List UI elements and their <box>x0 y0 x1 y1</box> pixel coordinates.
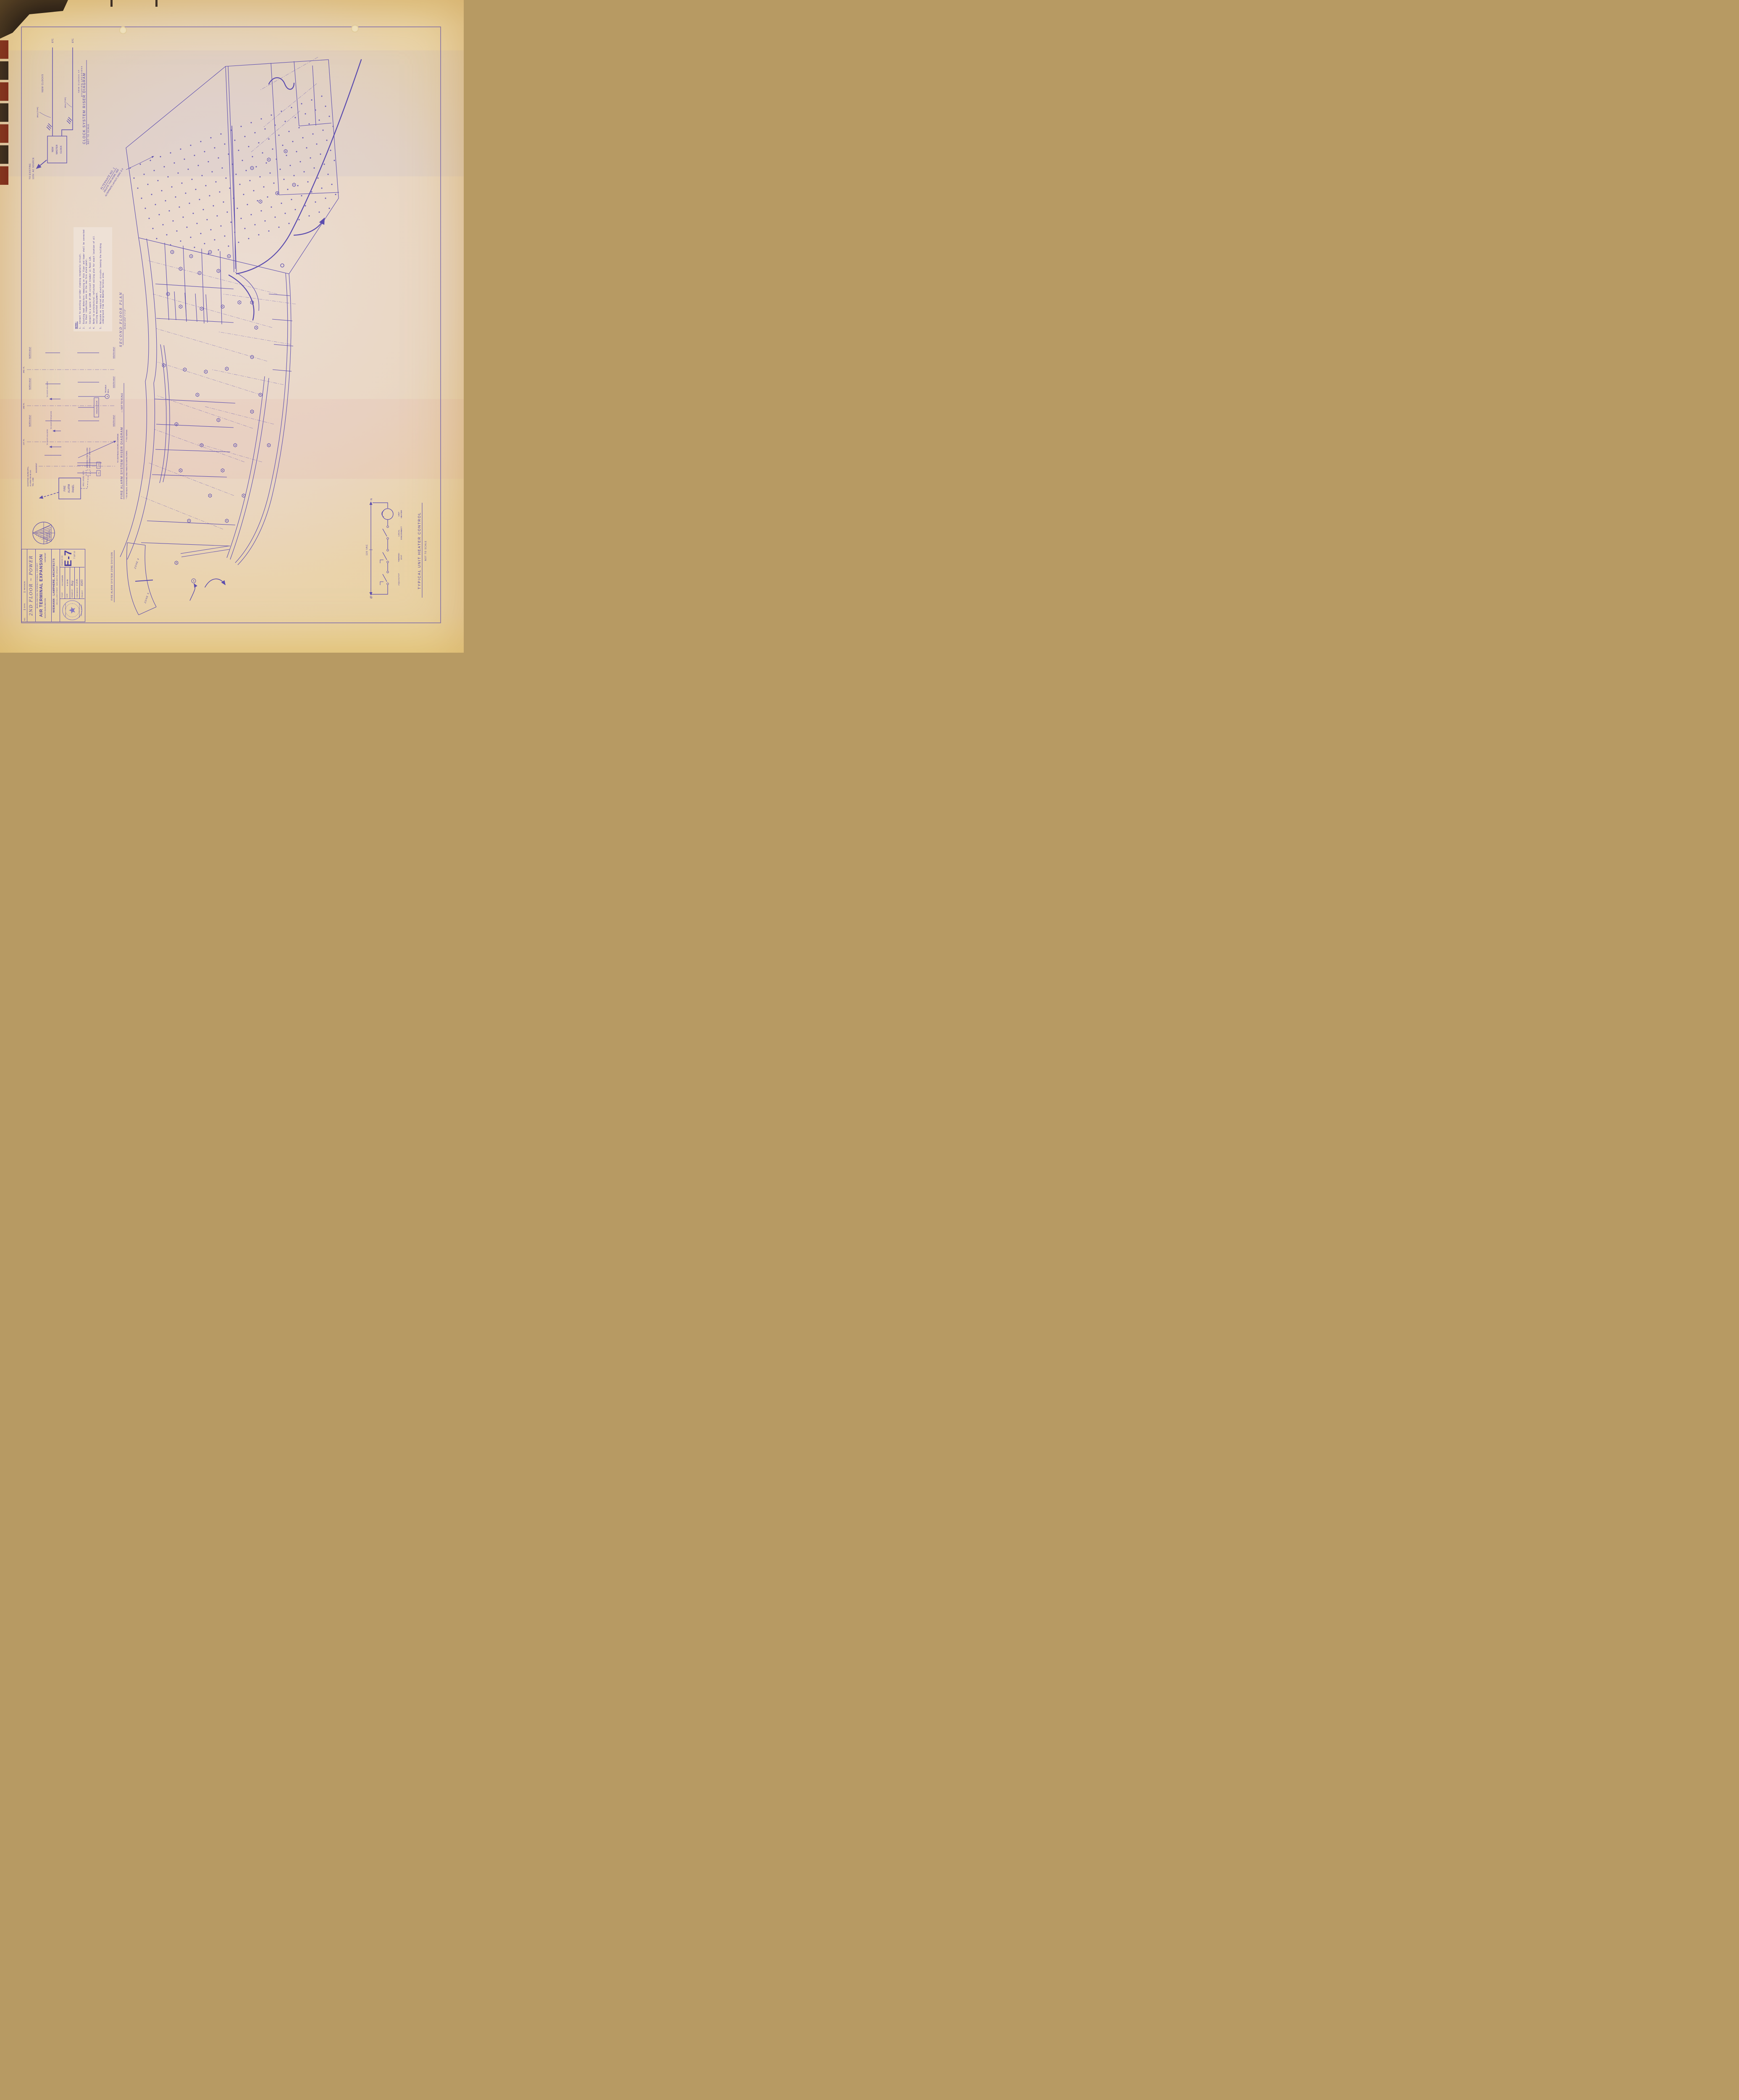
ceiling-dot <box>300 161 301 163</box>
sheet-title: 2ND FLOOR ~ POWER <box>27 549 36 622</box>
ceiling-dot <box>261 118 262 120</box>
ceiling-dot <box>310 157 311 159</box>
ceiling-dot <box>348 166 349 168</box>
svg-text:3#14 (TYP.): 3#14 (TYP.) <box>37 107 39 118</box>
svg-text:NORTH HALF: NORTH HALF <box>29 415 31 427</box>
receptacle-symbols <box>162 150 295 564</box>
ceiling-dot <box>305 205 306 207</box>
receptacle-hex <box>171 250 173 254</box>
clock-riser-diagram: TO EXISTING 120V. AC SOURCE NEW MASTER C… <box>21 34 89 186</box>
ceiling-dot <box>130 168 131 169</box>
film-tab <box>155 0 158 7</box>
ceiling-dot <box>137 188 139 189</box>
ceiling-dot <box>295 209 296 210</box>
ceiling-dot <box>144 174 145 175</box>
ceiling-dot <box>156 238 158 239</box>
ceiling-dot <box>214 239 215 241</box>
ceiling-dot <box>268 231 270 232</box>
date-value: 8-16-85 <box>66 579 68 586</box>
ceiling-dot <box>185 193 187 194</box>
svg-text:TO DOOR HOLDERS: TO DOOR HOLDERS <box>46 381 48 397</box>
ceiling-dot <box>198 257 199 258</box>
ceiling-dot <box>355 186 357 188</box>
ceiling-dot <box>224 236 226 237</box>
ceiling-dot <box>164 166 165 168</box>
svg-text:2ND FL.: 2ND FL. <box>23 402 25 409</box>
ceiling-dot <box>229 188 231 189</box>
ceiling-dot <box>295 117 296 118</box>
ceiling-dot <box>252 156 253 157</box>
svg-text:NEW: NEW <box>52 147 54 152</box>
ceiling-dot <box>155 204 156 205</box>
ceiling-dot <box>223 202 224 203</box>
ceiling-dot <box>194 155 195 156</box>
ceiling-dot <box>305 113 306 115</box>
ceiling-dot <box>152 228 154 229</box>
ceiling-dot <box>184 159 185 160</box>
ceiling-dot <box>169 210 170 212</box>
note-item: 1.Connect to existing corridor cleaning … <box>79 230 81 329</box>
ceiling-dot <box>265 220 266 222</box>
ceiling-dot <box>306 147 307 149</box>
drawing-number-cell: DRAWING NO. E-7 7 OF 10 <box>60 549 84 567</box>
svg-text:TO DOOR HOLDERS: TO DOOR HOLDERS <box>46 429 48 445</box>
ceiling-dot <box>265 129 266 130</box>
ceiling-dot <box>334 160 335 161</box>
ceiling-dot <box>213 205 214 207</box>
ceiling-dot <box>290 165 291 166</box>
receptacle-hex <box>208 250 211 254</box>
ceiling-dot <box>345 190 347 192</box>
svg-text:MASTER: MASTER <box>56 144 58 154</box>
ceiling-dot <box>232 164 233 165</box>
ceiling-dot <box>187 227 188 228</box>
ceiling-dot-grid <box>130 96 360 270</box>
project-number: 8205 <box>81 580 84 586</box>
svg-text:DISCONNECT: DISCONNECT <box>400 526 403 540</box>
ceiling-dot <box>170 152 171 154</box>
svg-text:ETC.: ETC. <box>52 38 54 43</box>
ceiling-dot <box>242 160 243 161</box>
ceiling-dot <box>299 127 300 129</box>
receptacle-hex <box>217 269 220 273</box>
rev-date-header: DATE <box>24 592 26 609</box>
svg-text:1ST. FL.: 1ST. FL. <box>23 438 25 445</box>
ceiling-dot <box>197 223 198 224</box>
title-block-bottom: JAMES A. LAMPHERE REGISTERED ARCHITECT S… <box>60 549 84 622</box>
receptacle-hex <box>255 326 257 329</box>
rev-no-header: NO. <box>24 609 26 622</box>
municipal-tiein-line <box>39 492 59 498</box>
ceiling-dot <box>255 224 256 226</box>
receptacle-hex <box>250 410 253 413</box>
ceiling-dot <box>159 214 160 215</box>
ceiling-dot <box>171 186 173 188</box>
ceiling-dot <box>297 185 299 186</box>
ceiling-dot <box>160 156 161 157</box>
ceiling-dot <box>278 135 280 136</box>
general-notes: NOTES: 1.Connect to existing corridor cl… <box>74 227 112 331</box>
ceiling-dot <box>190 145 192 146</box>
north-arrow: NORTH <box>33 522 55 544</box>
clock-riser-title: CLOCK SYSTEM RISER DIAGRAM <box>82 72 86 144</box>
ceiling-dot <box>349 200 350 202</box>
ceiling-dot <box>224 144 226 145</box>
ceiling-dot <box>261 210 262 212</box>
receptacle-hex <box>267 158 270 161</box>
ceiling-dot <box>190 237 192 238</box>
svg-text:AQUASTAT: AQUASTAT <box>398 573 400 585</box>
ceiling-dot <box>352 176 353 178</box>
ceiling-dot <box>251 122 252 123</box>
ceiling-dot <box>292 141 294 142</box>
svg-text:FIRE: FIRE <box>64 486 66 491</box>
ceiling-dot <box>301 195 302 197</box>
ceiling-dot <box>282 145 284 146</box>
ceiling-dot <box>270 173 271 174</box>
ceiling-dot <box>237 208 238 209</box>
receptacle-hex <box>242 494 245 497</box>
ceiling-dot <box>301 103 302 105</box>
svg-text:SOUTH HALF: SOUTH HALF <box>113 376 115 388</box>
clock-branches <box>47 47 73 136</box>
ceiling-dot <box>195 189 197 190</box>
ceiling-dot <box>239 184 241 185</box>
ceiling-dot <box>212 171 213 173</box>
heater-title: TYPICAL UNIT HEATER CONTROL <box>417 512 421 589</box>
ceiling-dot <box>140 164 141 165</box>
seal-line3: STATE OF VERMONT <box>81 604 82 616</box>
architect-name: WIEMANN · LAMPHERE, ARCHITECTS <box>53 549 55 622</box>
ceiling-dot <box>164 258 165 260</box>
ceiling-dot <box>179 207 180 208</box>
ceiling-dot <box>289 131 290 132</box>
rev-revision-header: REVISION <box>24 581 26 592</box>
ceiling-dot <box>188 169 189 170</box>
ceiling-dot <box>200 141 202 142</box>
svg-text:ETC.: ETC. <box>72 38 74 43</box>
svg-text:STAT: STAT <box>400 555 403 560</box>
ceiling-dot <box>165 200 166 202</box>
ceiling-dot <box>273 183 275 184</box>
ceiling-dot <box>192 179 193 180</box>
ceiling-dot <box>204 243 205 244</box>
ceiling-dot <box>248 238 250 239</box>
ceiling-dot <box>271 115 272 116</box>
svg-text:120V. AC SOURCE: 120V. AC SOURCE <box>32 157 35 179</box>
project-label: PROJECT <box>81 586 83 598</box>
hole-punch <box>351 25 359 32</box>
svg-text:THERMO-: THERMO- <box>398 552 400 562</box>
ceiling-dot <box>202 175 203 176</box>
svg-text:SOUTH HALF: SOUTH HALF <box>113 415 115 427</box>
plan-walls <box>120 60 339 565</box>
ceiling-dot <box>285 121 286 122</box>
checked-value: C.D.R. <box>76 579 79 586</box>
ceiling-dot <box>198 165 199 166</box>
svg-text:UNIT: UNIT <box>398 512 400 516</box>
blueprint-sheet: ALTERNATE NO. 1 DELETE THIS WORK, SEE AL… <box>0 0 464 653</box>
ceiling-dot <box>309 123 310 125</box>
receptacle-hex <box>204 370 207 373</box>
ceiling-dot <box>299 219 300 220</box>
svg-text:NORTH HALF: NORTH HALF <box>29 347 31 359</box>
outlet-runs <box>281 264 284 267</box>
ceiling-dot <box>311 100 313 101</box>
ceiling-dot <box>286 155 287 156</box>
svg-text:BELL: BELL <box>107 388 109 393</box>
ceiling-dot <box>304 171 305 173</box>
ceiling-dot <box>302 137 304 139</box>
ceiling-dot <box>234 140 236 141</box>
ceiling-dot <box>214 147 215 149</box>
receptacle-hex <box>292 183 295 186</box>
svg-text:TO VESTIBULE DOORS OVERRIDE: TO VESTIBULE DOORS OVERRIDE <box>117 433 119 463</box>
ceiling-dot <box>244 136 246 137</box>
ceiling-dot <box>268 139 270 140</box>
ceiling-dot <box>314 168 315 169</box>
svg-text:ALARM: ALARM <box>68 484 71 493</box>
ceiling-dot <box>188 261 189 262</box>
ceiling-dot <box>275 125 276 126</box>
ceiling-dot <box>231 222 232 223</box>
ceiling-dot <box>291 107 292 108</box>
svg-text:EXISTING MUNICIPAL: EXISTING MUNICIPAL <box>27 466 29 486</box>
ceiling-dot <box>181 183 183 184</box>
ceiling-dot <box>238 242 239 243</box>
ceiling-dot <box>176 231 178 232</box>
floor-lines <box>27 370 115 466</box>
ceiling-dot <box>336 136 338 137</box>
ceiling-dot <box>341 180 343 181</box>
revision-strip: NO. DATE REVISION <box>22 549 27 622</box>
receptacle-hex <box>267 444 270 447</box>
ceiling-dot <box>331 184 333 185</box>
architect-block: WIEMANN · LAMPHERE, ARCHITECTS 299 COLLE… <box>52 549 60 622</box>
ceiling-dot <box>221 134 222 135</box>
svg-text:ANNUNCIATOR: ANNUNCIATOR <box>96 401 98 414</box>
svg-text:DISCONNECT SWITCH.: DISCONNECT SWITCH. <box>89 447 91 468</box>
plan-title: SECOND FLOOR PLAN SCALE 3/32" = 1'-0" <box>119 291 126 347</box>
clock-riser-source: TO EXISTING 120V. AC SOURCE <box>29 157 47 179</box>
ceiling-dot <box>173 220 174 222</box>
svg-text:BASEMENT: BASEMENT <box>35 463 37 472</box>
ceiling-dot <box>233 198 234 199</box>
ceiling-dot <box>193 213 194 214</box>
fire-alarm-riser-diagram: BASEMENT 1ST. FL. 2ND FL. 3RD. FL. FIRE … <box>18 341 129 505</box>
ceiling-dot <box>174 255 175 256</box>
note-item: 3.Connect to a spare 1F-20A circuit brea… <box>89 230 92 329</box>
ceiling-dot <box>227 212 228 213</box>
project-city: SOUTH BURLINGTON <box>44 598 46 618</box>
heater-circuit <box>369 502 388 595</box>
film-tab <box>110 0 113 7</box>
ceiling-dot <box>221 226 222 227</box>
receptacle-hex <box>259 200 262 203</box>
svg-text:NOT TO SCALE: NOT TO SCALE <box>425 541 427 561</box>
svg-text:HEATER: HEATER <box>400 510 403 518</box>
svg-text:CLOCK: CLOCK <box>60 145 63 154</box>
receptacle-hex <box>175 561 178 564</box>
project-name-block: BURLINGTON INTERNATIONAL AIRPORT AIR TER… <box>36 549 52 622</box>
ceiling-dot <box>321 96 323 97</box>
ceiling-dot <box>313 134 314 135</box>
ceiling-dot <box>359 197 360 198</box>
ceiling-dot <box>168 268 169 270</box>
svg-text:B: B <box>106 396 108 397</box>
ceiling-dot <box>271 207 272 208</box>
ceiling-dot <box>340 146 341 147</box>
svg-text:* TO MANUAL STATIONS AND THEN: * TO MANUAL STATIONS AND THEN TO DETECTO… <box>126 451 128 499</box>
fire-riser-title: FIRE ALARM SYSTEM RISER DIAGRAM <box>120 427 123 499</box>
ceiling-dot <box>203 209 204 210</box>
ceiling-dot <box>281 111 282 112</box>
ceiling-dot <box>296 151 297 152</box>
ceiling-dot <box>238 150 239 151</box>
ceiling-dot <box>244 228 246 229</box>
ceiling-dot <box>318 178 319 179</box>
ceiling-dot <box>210 137 212 139</box>
ceiling-dot <box>247 204 248 205</box>
ceiling-dot <box>161 190 163 192</box>
ceiling-dot <box>154 170 155 171</box>
svg-text:ZONE 5: ZONE 5 <box>144 592 150 604</box>
drawn-value: Ray <box>71 580 74 586</box>
ceiling-dot <box>272 149 273 150</box>
ceiling-dot <box>267 197 268 198</box>
ceiling-dot <box>285 213 286 214</box>
ceiling-dot <box>307 181 309 183</box>
ceiling-dot <box>294 175 295 176</box>
ceiling-dot <box>163 224 164 226</box>
ceiling-dot <box>255 132 256 134</box>
ceiling-dot <box>207 219 208 220</box>
ceiling-dot <box>250 180 251 181</box>
ceiling-dot <box>251 214 252 215</box>
svg-text:FS: FS <box>98 472 100 474</box>
receptacle-hex <box>221 469 224 472</box>
ceiling-dot <box>145 208 146 209</box>
receptacle-hex <box>250 166 253 170</box>
svg-text:SECOND FLOOR PLAN: SECOND FLOOR PLAN <box>119 291 123 347</box>
ceiling-dot <box>178 265 179 266</box>
scale-value: AS SHOWN <box>61 575 63 586</box>
ceiling-dot <box>329 208 330 209</box>
ceiling-dot <box>258 234 260 236</box>
ceiling-dot <box>321 188 323 189</box>
svg-text:3#14 (TYP.): 3#14 (TYP.) <box>64 97 67 108</box>
ceiling-dot <box>246 170 247 171</box>
scale-label: SCALE <box>61 586 63 598</box>
receptacle-hex <box>227 255 230 258</box>
stair-a-label: A <box>193 580 194 583</box>
stair-fragment <box>181 546 229 601</box>
ceiling-dot <box>160 248 161 249</box>
hole-punch <box>119 26 127 34</box>
receptacle-hex <box>187 519 190 522</box>
ceiling-dot <box>141 198 142 199</box>
receptacle-hex <box>225 519 228 522</box>
ceiling-dot <box>180 241 181 242</box>
ceiling-dot <box>168 176 169 178</box>
svg-text:ZONE 4: ZONE 4 <box>134 558 140 570</box>
svg-text:N: N <box>370 499 373 500</box>
ceiling-dot <box>184 251 185 252</box>
ceiling-dot <box>315 202 316 203</box>
receptacle-hex <box>200 307 203 310</box>
ceiling-dot <box>262 152 263 154</box>
ceiling-dot <box>326 140 328 141</box>
svg-text:3RD. FL.: 3RD. FL. <box>23 366 25 373</box>
ceiling-dot <box>309 215 310 217</box>
ceiling-dot <box>266 163 267 164</box>
ceiling-dot <box>149 218 150 219</box>
svg-text:NEW CLOCKS AT: NEW CLOCKS AT <box>78 69 80 92</box>
ceiling-dot <box>218 157 219 159</box>
receptacle-hex <box>189 255 192 258</box>
ceiling-dot <box>241 126 242 127</box>
ceiling-dot <box>339 204 340 205</box>
ceiling-dot <box>147 184 149 185</box>
ceiling-dot <box>243 194 244 195</box>
architect-seal: JAMES A. LAMPHERE REGISTERED ARCHITECT S… <box>60 598 84 622</box>
ceiling-dot <box>194 247 195 248</box>
receptacle-hex <box>162 364 165 367</box>
notes-heading: NOTES: <box>75 230 78 329</box>
ceiling-dot <box>258 142 260 144</box>
ceiling-dot <box>287 189 289 190</box>
ceiling-dot <box>276 159 277 160</box>
phase-symbol: Ø <box>370 596 373 598</box>
svg-text:TO DOOR OPERATORS: TO DOOR OPERATORS <box>50 411 52 429</box>
note-item: 5.Relocate as required any electrical ci… <box>100 230 105 329</box>
ceiling-dot <box>200 233 202 234</box>
ceiling-dot <box>338 170 339 171</box>
ceiling-dot <box>319 120 320 121</box>
drawn-label: DRAWN BY <box>71 586 73 598</box>
svg-text:PANEL: PANEL <box>72 484 75 493</box>
note-item: 4.Refer to architectural reflected ceili… <box>93 230 98 329</box>
receptacle-hex <box>183 368 186 371</box>
svg-text:SCALE 3/32" = 1'-0": SCALE 3/32" = 1'-0" <box>124 309 126 329</box>
receptacle-hex <box>196 393 199 396</box>
ceiling-dot <box>316 144 318 145</box>
disconnect-line <box>81 475 88 488</box>
receptacle-hex <box>179 469 182 472</box>
ceiling-dot <box>158 180 159 181</box>
svg-text:TEL. LINE: TEL. LINE <box>32 478 34 486</box>
ceiling-dot <box>217 215 218 217</box>
receptacle-hex <box>225 367 228 370</box>
seal-line2: REGISTERED ARCHITECT <box>79 603 80 617</box>
ceiling-dot <box>178 173 179 174</box>
ceiling-dot <box>319 212 320 213</box>
receptacle-hex <box>276 192 278 195</box>
receptacle-hex <box>217 418 220 422</box>
sheet-count: 7 OF 10 <box>74 549 76 567</box>
ceiling-dot <box>175 197 176 198</box>
ceiling-dot <box>174 163 175 164</box>
ceiling-dot <box>330 150 331 151</box>
project-line2: AIR TERMINAL EXPANSION <box>39 549 44 622</box>
ceiling-dot <box>218 249 219 251</box>
ceiling-dot <box>257 200 258 202</box>
svg-text:LOCAL: LOCAL <box>398 530 400 536</box>
ceiling-dot <box>226 178 227 179</box>
ceiling-dot <box>166 234 168 236</box>
ceiling-dot <box>260 176 261 178</box>
svg-text:NOT TO SCALE: NOT TO SCALE <box>87 124 89 144</box>
